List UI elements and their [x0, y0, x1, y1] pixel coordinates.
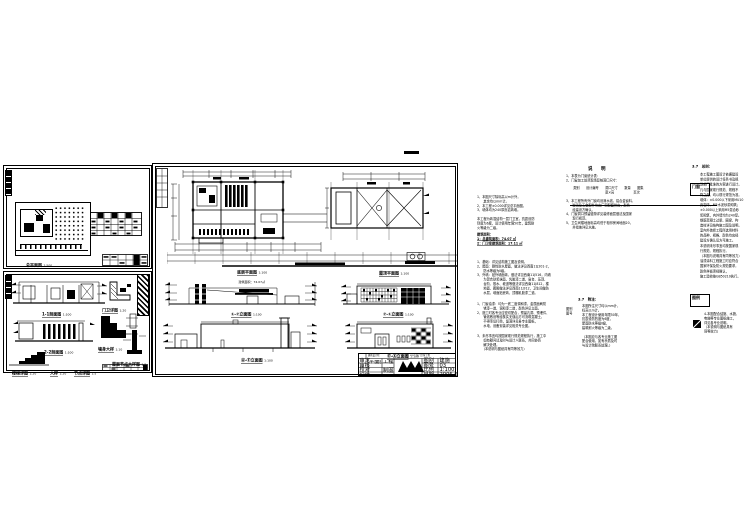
note-line: 同等效力）	[704, 330, 739, 334]
mini-title-strip	[102, 364, 148, 371]
panel-main-sheet: 底层平面图1:100建筑面积：74.07㎡ 屋顶平面图1:100	[152, 163, 458, 377]
notes-b-header: 说 明	[588, 165, 608, 172]
notes-column-a: 1、本图尺寸除标高以m计外， 其余均以mm计。2、本工程±0.000详见总平面图…	[477, 195, 567, 355]
mini-title-strip	[102, 254, 148, 266]
tb-field-4: 日期	[424, 373, 434, 378]
tb-value-4: 2006.6	[440, 373, 458, 378]
notes-column-c-lower: 图例 4-本图配合结施、水施、电施等专业图纸施工，详见各专业说明。（本说明与图纸…	[690, 294, 748, 354]
elevation-4-drawing	[345, 316, 453, 354]
schedule-header-line: 宽×高 页次	[570, 190, 643, 194]
note-line: （本说明与图纸具有同等效力）	[477, 347, 546, 351]
note-line: 水电、设备安装详见相关专业图。	[477, 324, 549, 328]
notes-b2-side: 图别图号	[566, 307, 572, 316]
sheet-set-mark	[404, 151, 419, 154]
tb-row-4: 设计	[360, 373, 370, 378]
site-building-outline	[20, 209, 53, 237]
tb-company: 建筑设计院	[368, 354, 391, 360]
elevation-3-drawing	[163, 316, 317, 354]
elevation-3-label: Ⓐ-Ⓔ立面图1:100	[241, 354, 321, 360]
notes-c-header: 3.7 总则：	[692, 164, 712, 169]
note-line: 2：门卫室建筑面积：17.11 ㎡	[477, 241, 522, 245]
elevation-1-label: ①-⑦立面图1:100	[231, 308, 311, 314]
schedule-table	[90, 212, 142, 236]
panel-details-sheet: 1-1剖面图1:100 门卫详图1:20 2-2剖面图1:100	[3, 271, 152, 373]
notes-column-b: 说 明 1、本表为门窗统计表：2、门窗加工前须现场复核洞口尺寸： 类别 设计编号…	[566, 165, 654, 240]
section-1-drawing	[11, 277, 107, 307]
guard-detail-label: 门卫详图1:20	[102, 304, 152, 310]
notes-b-list2: 3、本工程所有外门窗均设滴水线，铝合金窗料、 玻璃及五金配件均由厂家配套供应，颜…	[566, 199, 635, 230]
note-line: 并找坡详见水施。	[566, 225, 635, 229]
notes-a-block4: 1、门窗油漆：均为一底二度调和漆，金属面刷防 锈漆一道、调和漆二道，颜色详见立面…	[477, 302, 549, 328]
elevation-2-drawing	[341, 278, 451, 310]
notes-a-block2: 本工程为砖混结构一层门卫室，抗震设防烈度为6度，设计使用年限50年，建筑耐火等级…	[477, 217, 535, 230]
company-logo	[398, 361, 424, 372]
notes-a-block5: 3、未尽事宜均按国家现行规范规程执行，施工中 如有疑问请及时与设计人联系，共同协…	[477, 334, 546, 352]
notes-b2-header: 3.7 附注：	[578, 297, 598, 302]
note-line: 2、门窗加工前须现场复核洞口尺寸：	[566, 178, 619, 182]
notes-column-b-lower: 图别图号 3.7 附注： 本图所注尺寸均以mm计，标高以m计。本工程设计使用年限…	[566, 297, 652, 357]
side-label-line: 图号	[566, 311, 572, 315]
note-line: 3、墙体均为240厚页岩砖墙。	[477, 208, 526, 212]
floor-plan-drawing	[169, 170, 327, 258]
note-line: ±0.000以上采用M5混合砂	[700, 208, 743, 213]
notes-a-area-title: 建筑面积：	[477, 232, 493, 237]
notes-b-list1: 1、本表为门窗统计表：2、门窗加工前须现场复核洞口尺寸：	[566, 174, 619, 183]
note-line: 与设计院联系处理。）	[582, 344, 621, 348]
panel-site-plan-sheet: 总平面图1:500	[3, 165, 152, 269]
guard-detail-drawing	[106, 279, 134, 303]
elevation-1-drawing	[165, 278, 317, 310]
stair-detail-drawing	[9, 349, 49, 367]
roof-plan-drawing	[323, 172, 449, 246]
elevation-2-label: ⑦-①立面图1:100	[383, 308, 463, 314]
site-plan-label: 总平面图1:500	[26, 259, 106, 265]
signature-strip	[5, 170, 12, 196]
tb-mid-2: 制图	[383, 369, 393, 374]
legend-swatch-icon	[693, 320, 701, 328]
signature-strip	[156, 168, 168, 208]
notes-column-c: 3.7 总则： 门窗 本工程施工图设计依据建设单位提供的设计任务书及规划部门批准…	[690, 164, 748, 290]
drawing-canvas: 总平面图1:500	[0, 0, 749, 530]
note-line: 火等级为二级。	[477, 226, 535, 230]
notes-a-block1: 1、本图尺寸除标高以m计外， 其余均以mm计。2、本工程±0.000详见总平面图…	[477, 195, 526, 213]
title-block: 建筑设计院 ××厂区门卫室工程 审定 审核 校对 设计 工程负责 制图 平面图·…	[358, 353, 456, 376]
tb-mid-1: 工程负责	[383, 360, 393, 365]
roof-node-detail-drawing	[121, 328, 147, 356]
note-line: 施工验收按GB50210执行。	[700, 274, 743, 279]
tb-drawing-name: 平面图·立面图·剖面图	[369, 360, 381, 365]
notes-b2-lines: 本图所注尺寸均以mm计，标高以m计。本工程设计使用年限50年，抗震设防烈度为6度…	[582, 304, 621, 348]
notes-b-table: 类别 设计编号 洞口尺寸 数量 图集 宽×高 页次	[570, 186, 643, 195]
notes-c2-lines: 4-本图配合结施、水施、电施等专业图纸施工，详见各专业说明。（本说明与图纸具有同…	[704, 312, 739, 334]
notes-c-lines: 本工程施工图设计依据建设单位提供的设计任务书及规划部门批准的方案进行设计。凡与国…	[700, 172, 743, 279]
notes-c2-tag: 图例	[690, 294, 710, 307]
section-2-drawing	[13, 315, 95, 345]
notes-a-area: 1：总建筑面积：74.07 ㎡2：门卫室建筑面积：17.11 ㎡	[477, 237, 522, 246]
site-plan-drawing	[15, 202, 91, 256]
notes-a-block3: 1、基础：详见结构施工图及说明。2、屋面：刚性防水屋面，做法详见西南11J201…	[477, 260, 551, 295]
site-tree-grid	[54, 206, 86, 242]
site-boundary-lines	[167, 252, 457, 270]
note-line: 水层，墙面贴瓷砖，顶棚乳胶漆二道。	[477, 291, 551, 295]
site-road-ticks	[20, 244, 82, 249]
